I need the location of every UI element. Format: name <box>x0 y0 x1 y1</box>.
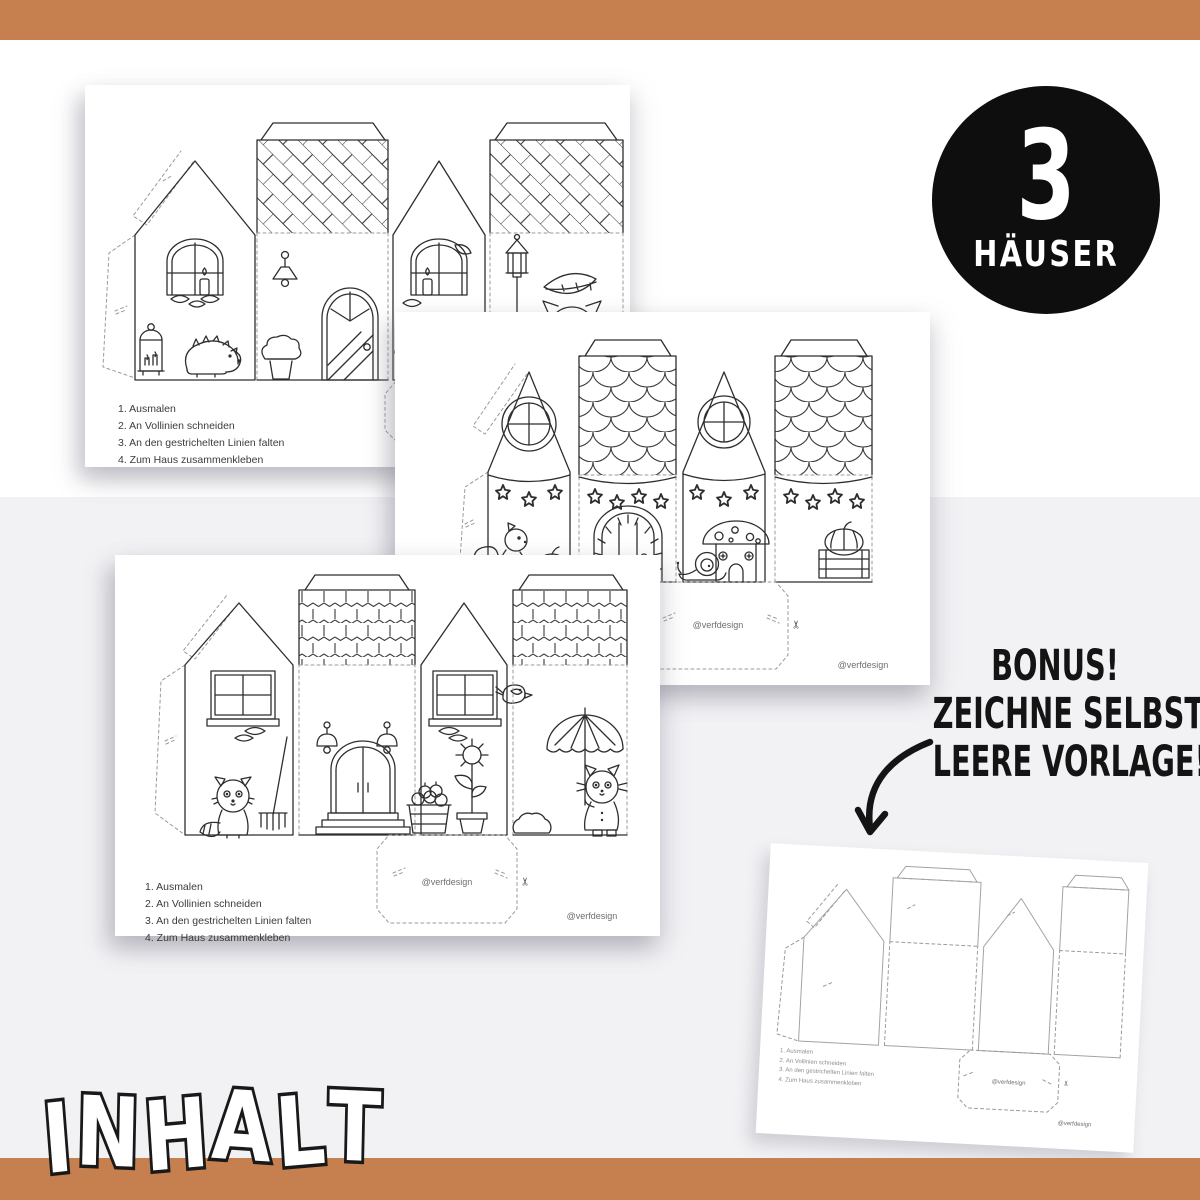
badge-number: 3 <box>1016 123 1075 231</box>
footer-title: INHALT <box>42 1081 386 1184</box>
top-accent-bar <box>0 0 1200 40</box>
instruction-step: 1. Ausmalen <box>118 401 284 418</box>
scissors-icon: ✂ <box>1063 1080 1071 1086</box>
pumpkin-crate-drawing <box>819 522 869 578</box>
instruction-step: 3. An den gestrichelten Linien falten <box>145 913 311 930</box>
watermark: @verfdesign <box>693 620 744 630</box>
watermark: @verfdesign <box>422 877 473 887</box>
lantern-drawing <box>138 324 164 375</box>
wall-lamp-drawing <box>377 722 397 753</box>
watermark: @verfdesign <box>992 1079 1026 1087</box>
round-window-drawing <box>502 397 556 451</box>
count-badge: 3 HÄUSER <box>932 86 1160 314</box>
herringbone-roof <box>257 140 388 233</box>
double-door-drawing <box>316 741 410 834</box>
apple-basket-drawing <box>407 782 451 833</box>
badge-label: HÄUSER <box>973 234 1119 275</box>
instructions-list: 1. Ausmalen 2. An Vollinien schneiden 3.… <box>778 1047 875 1090</box>
shingle-roof <box>513 590 627 665</box>
scissors-icon: ✂ <box>519 877 532 886</box>
instructions-list: 1. Ausmalen 2. An Vollinien schneiden 3.… <box>145 879 311 947</box>
bush-pot-drawing <box>262 335 301 379</box>
round-window-drawing <box>698 396 750 448</box>
instruction-step: 4. Zum Haus zusammenkleben <box>145 930 311 947</box>
watermark: @verfdesign <box>838 660 889 670</box>
arched-window-drawing <box>167 239 223 307</box>
mushroom-house-drawing <box>703 521 769 582</box>
instruction-step: 4. Zum Haus zusammenkleben <box>118 452 284 469</box>
scallop-roof <box>579 356 676 475</box>
scallop-roof <box>775 356 872 475</box>
square-window-drawing <box>429 671 501 741</box>
rake-drawing <box>259 737 287 830</box>
watermark: @verfdesign <box>1058 1121 1092 1129</box>
umbrella-cat-drawing <box>547 708 627 836</box>
shingle-roof <box>299 590 415 665</box>
blank-template-drawing: @verfdesign ✂ @verfdesign <box>756 843 1149 1152</box>
raccoon-drawing <box>200 777 254 838</box>
watermark: @verfdesign <box>567 911 618 921</box>
wall-lamp-drawing <box>317 722 337 753</box>
instruction-step: 3. An den gestrichelten Linien falten <box>118 435 284 452</box>
square-window-drawing <box>207 671 279 741</box>
curved-arrow-icon <box>848 736 948 846</box>
herringbone-roof <box>490 140 623 233</box>
worksheet-page-3: @verfdesign ✂ @verfdesign 1. Ausmalen 2.… <box>115 555 660 936</box>
arched-window-drawing <box>403 239 471 307</box>
scissors-icon: ✂ <box>790 620 803 629</box>
bonus-line: ZEICHNE SELBST - <box>933 689 1178 740</box>
worksheet-page-4-blank: @verfdesign ✂ @verfdesign 1. Ausmalen 2.… <box>756 843 1149 1152</box>
striped-door-drawing <box>322 288 378 380</box>
hedgehog-drawing <box>186 336 241 377</box>
bonus-line: LEERE VORLAGE! <box>933 737 1178 788</box>
instructions-list: 1. Ausmalen 2. An Vollinien schneiden 3.… <box>118 401 284 469</box>
instruction-step: 2. An Vollinien schneiden <box>118 418 284 435</box>
bush-drawing <box>513 813 551 833</box>
bird-drawing <box>496 685 532 703</box>
instruction-step: 1. Ausmalen <box>145 879 311 896</box>
instruction-step: 2. An Vollinien schneiden <box>145 896 311 913</box>
sunflower-drawing <box>455 739 488 833</box>
wall-lamp-drawing <box>273 252 297 287</box>
product-cover: 1. Ausmalen 2. An Vollinien schneiden 3.… <box>0 0 1200 1200</box>
bonus-line: BONUS! <box>933 641 1178 692</box>
